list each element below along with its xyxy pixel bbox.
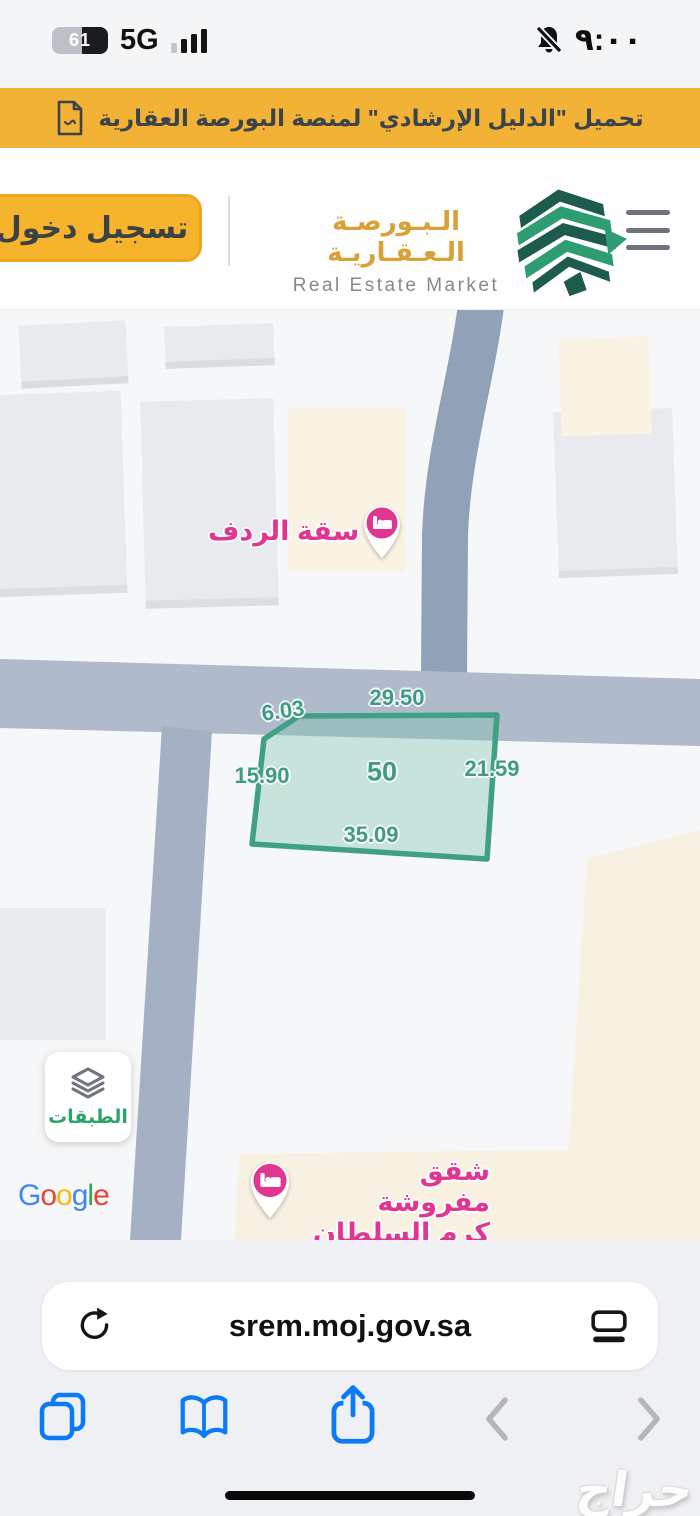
- logo-arabic-title: الـبـورصـة الـعـقـاريـة: [292, 206, 500, 268]
- parcel-side-left: 15.90: [234, 763, 289, 789]
- layers-icon: [70, 1066, 106, 1100]
- battery-icon: 61: [52, 27, 108, 54]
- google-logo[interactable]: Google: [18, 1179, 109, 1213]
- home-indicator[interactable]: [225, 1491, 475, 1500]
- parcel-number: 50: [367, 757, 397, 788]
- safari-toolbar: srem.moj.gov.sa: [0, 1240, 700, 1516]
- browser-bottom-toolbar: [0, 1390, 700, 1454]
- phone-screen: 61 5G ٩:٠٠ تحميل "الدليل الإرشادي" لمنصة…: [0, 0, 700, 1516]
- status-left-cluster: 61 5G: [52, 24, 207, 57]
- url-text: srem.moj.gov.sa: [42, 1308, 658, 1344]
- status-time: ٩:٠٠: [575, 22, 642, 58]
- logo-english-title: Real Estate Market: [292, 275, 500, 297]
- srem-logo-icon: [502, 174, 628, 300]
- poi-label-hotel-1[interactable]: سقة الردف: [208, 516, 360, 547]
- map-road-vertical-lower: [130, 726, 212, 1240]
- pdf-icon: [56, 100, 84, 136]
- parcel-side-right: 21.59: [464, 756, 519, 782]
- hotel-pin-2[interactable]: [246, 1158, 294, 1220]
- forward-icon[interactable]: [632, 1396, 666, 1442]
- header-divider: [228, 196, 230, 266]
- parcel-side-bottom: 35.09: [343, 822, 398, 848]
- map-road-vertical-upper: [444, 310, 482, 678]
- network-type-label: 5G: [120, 24, 159, 57]
- menu-icon: [626, 210, 670, 215]
- poi-label-hotel-2[interactable]: شقق مفروشة كرم السلطان: [300, 1156, 490, 1240]
- site-logo-text: الـبـورصـة الـعـقـاريـة Real Estate Mark…: [292, 206, 500, 297]
- tabs-icon[interactable]: [36, 1390, 90, 1444]
- battery-percent: 61: [52, 30, 108, 51]
- bookmarks-icon[interactable]: [178, 1392, 230, 1442]
- cellular-signal-icon: [171, 29, 207, 53]
- mute-bell-icon: [533, 24, 565, 56]
- address-bar[interactable]: srem.moj.gov.sa: [42, 1282, 658, 1370]
- hotel-pin-1[interactable]: [360, 502, 404, 560]
- layers-label: الطبقات: [48, 1106, 128, 1129]
- parcel-side-top: 29.50: [369, 685, 424, 711]
- banner-text: تحميل "الدليل الإرشادي" لمنصة البورصة ال…: [98, 105, 643, 132]
- back-icon[interactable]: [480, 1396, 514, 1442]
- share-icon[interactable]: [325, 1384, 381, 1446]
- download-guide-banner[interactable]: تحميل "الدليل الإرشادي" لمنصة البورصة ال…: [0, 88, 700, 148]
- haraj-watermark: حراج: [573, 1462, 696, 1516]
- menu-button[interactable]: [626, 210, 670, 250]
- status-bar: 61 5G ٩:٠٠: [0, 0, 700, 88]
- layers-button[interactable]: الطبقات: [45, 1052, 131, 1142]
- map-canvas[interactable]: 29.50 6.03 15.90 50 21.59 35.09 سقة الرد…: [0, 310, 700, 1240]
- status-right-cluster: ٩:٠٠: [533, 22, 642, 58]
- site-header: تسجيل دخول الـبـورصـة الـعـقـاريـة Real …: [0, 148, 700, 310]
- tab-layout-icon[interactable]: [590, 1308, 628, 1346]
- login-button[interactable]: تسجيل دخول: [0, 194, 202, 262]
